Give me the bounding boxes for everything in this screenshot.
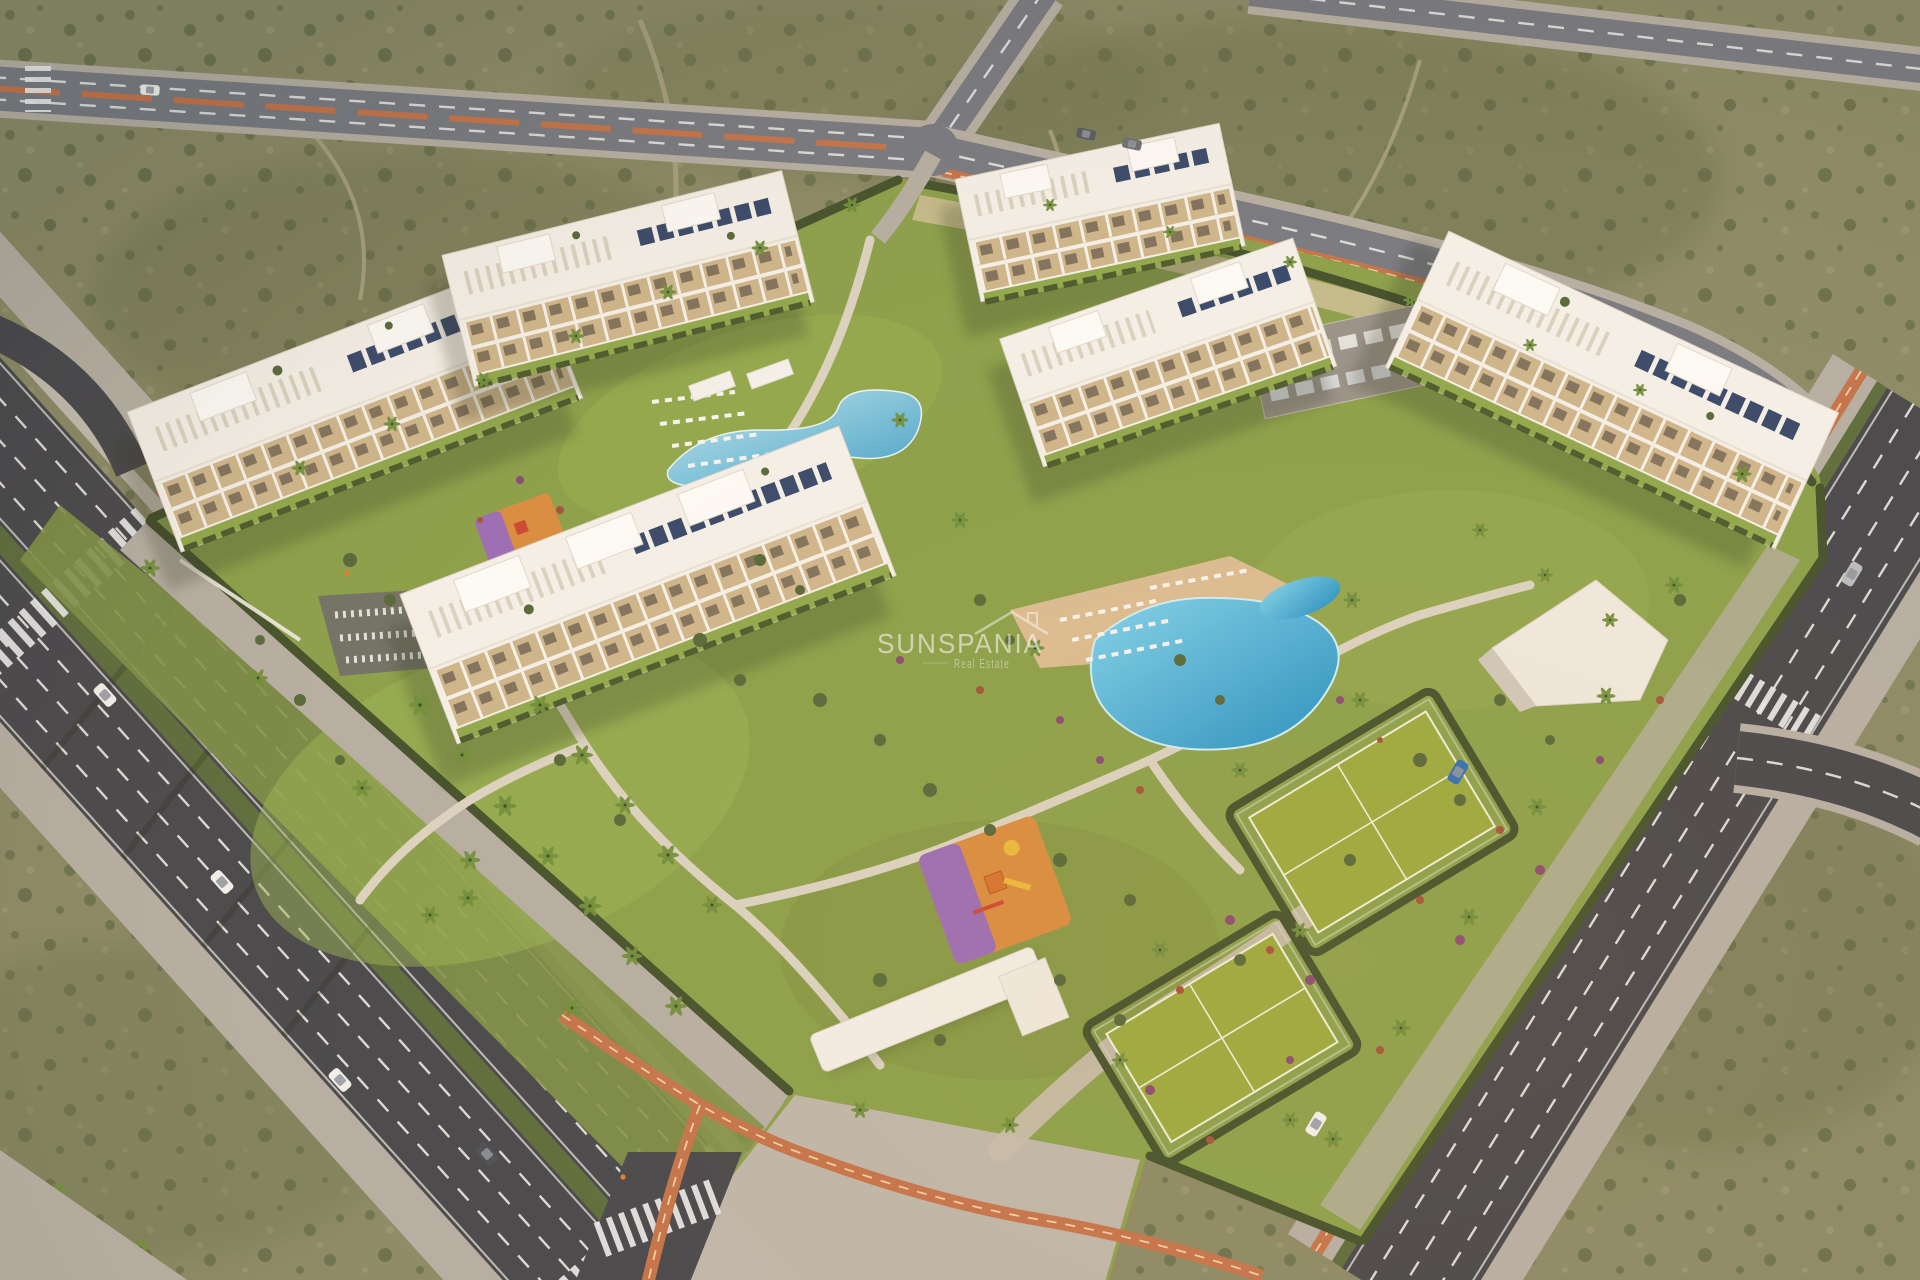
aerial-render: SUNSPANIA Real Estate	[0, 0, 1920, 1280]
watermark-subtitle: Real Estate	[954, 656, 1010, 671]
aerial-render-stage: SUNSPANIA Real Estate	[0, 0, 1920, 1280]
watermark-title: SUNSPANIA	[877, 628, 1043, 659]
